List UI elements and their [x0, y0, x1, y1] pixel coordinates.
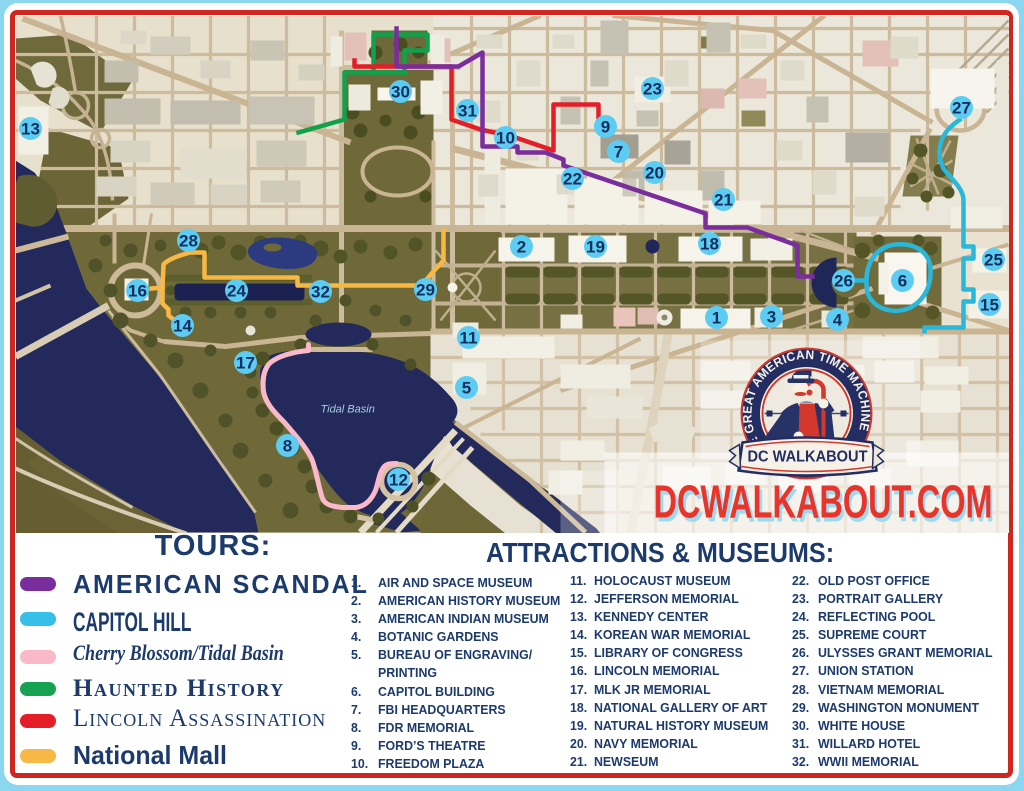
svg-text:29: 29 — [416, 280, 435, 299]
svg-text:9: 9 — [600, 117, 609, 136]
svg-text:5: 5 — [461, 378, 470, 397]
svg-text:26: 26 — [834, 271, 853, 290]
svg-text:8: 8 — [282, 436, 291, 455]
svg-text:18: 18 — [700, 234, 719, 253]
svg-text:23: 23 — [643, 79, 662, 98]
svg-text:10: 10 — [496, 128, 515, 147]
svg-text:16: 16 — [128, 281, 147, 300]
svg-text:4: 4 — [832, 310, 842, 329]
svg-text:30: 30 — [391, 82, 410, 101]
svg-text:21: 21 — [714, 190, 733, 209]
svg-text:24: 24 — [227, 281, 246, 300]
svg-text:2: 2 — [516, 237, 525, 256]
svg-text:3: 3 — [766, 307, 775, 326]
svg-text:27: 27 — [952, 98, 971, 117]
svg-text:1: 1 — [711, 308, 720, 327]
svg-text:20: 20 — [645, 163, 664, 182]
svg-text:11: 11 — [459, 328, 477, 347]
svg-text:6: 6 — [897, 271, 906, 290]
svg-text:DC WALKABOUT: DC WALKABOUT — [747, 448, 867, 465]
svg-text:13: 13 — [21, 119, 40, 138]
svg-text:7: 7 — [613, 142, 622, 161]
svg-text:31: 31 — [458, 101, 477, 120]
svg-text:25: 25 — [984, 250, 1003, 269]
svg-text:Tidal Basin: Tidal Basin — [320, 403, 374, 415]
svg-text:28: 28 — [179, 231, 198, 250]
svg-text:22: 22 — [563, 169, 582, 188]
svg-text:15: 15 — [980, 295, 999, 314]
svg-text:14: 14 — [173, 316, 192, 335]
svg-text:32: 32 — [311, 282, 330, 301]
svg-text:19: 19 — [586, 237, 605, 256]
svg-text:12: 12 — [389, 470, 408, 489]
svg-text:17: 17 — [236, 353, 255, 372]
svg-text:DCWALKABOUT.COM: DCWALKABOUT.COM — [653, 475, 992, 527]
